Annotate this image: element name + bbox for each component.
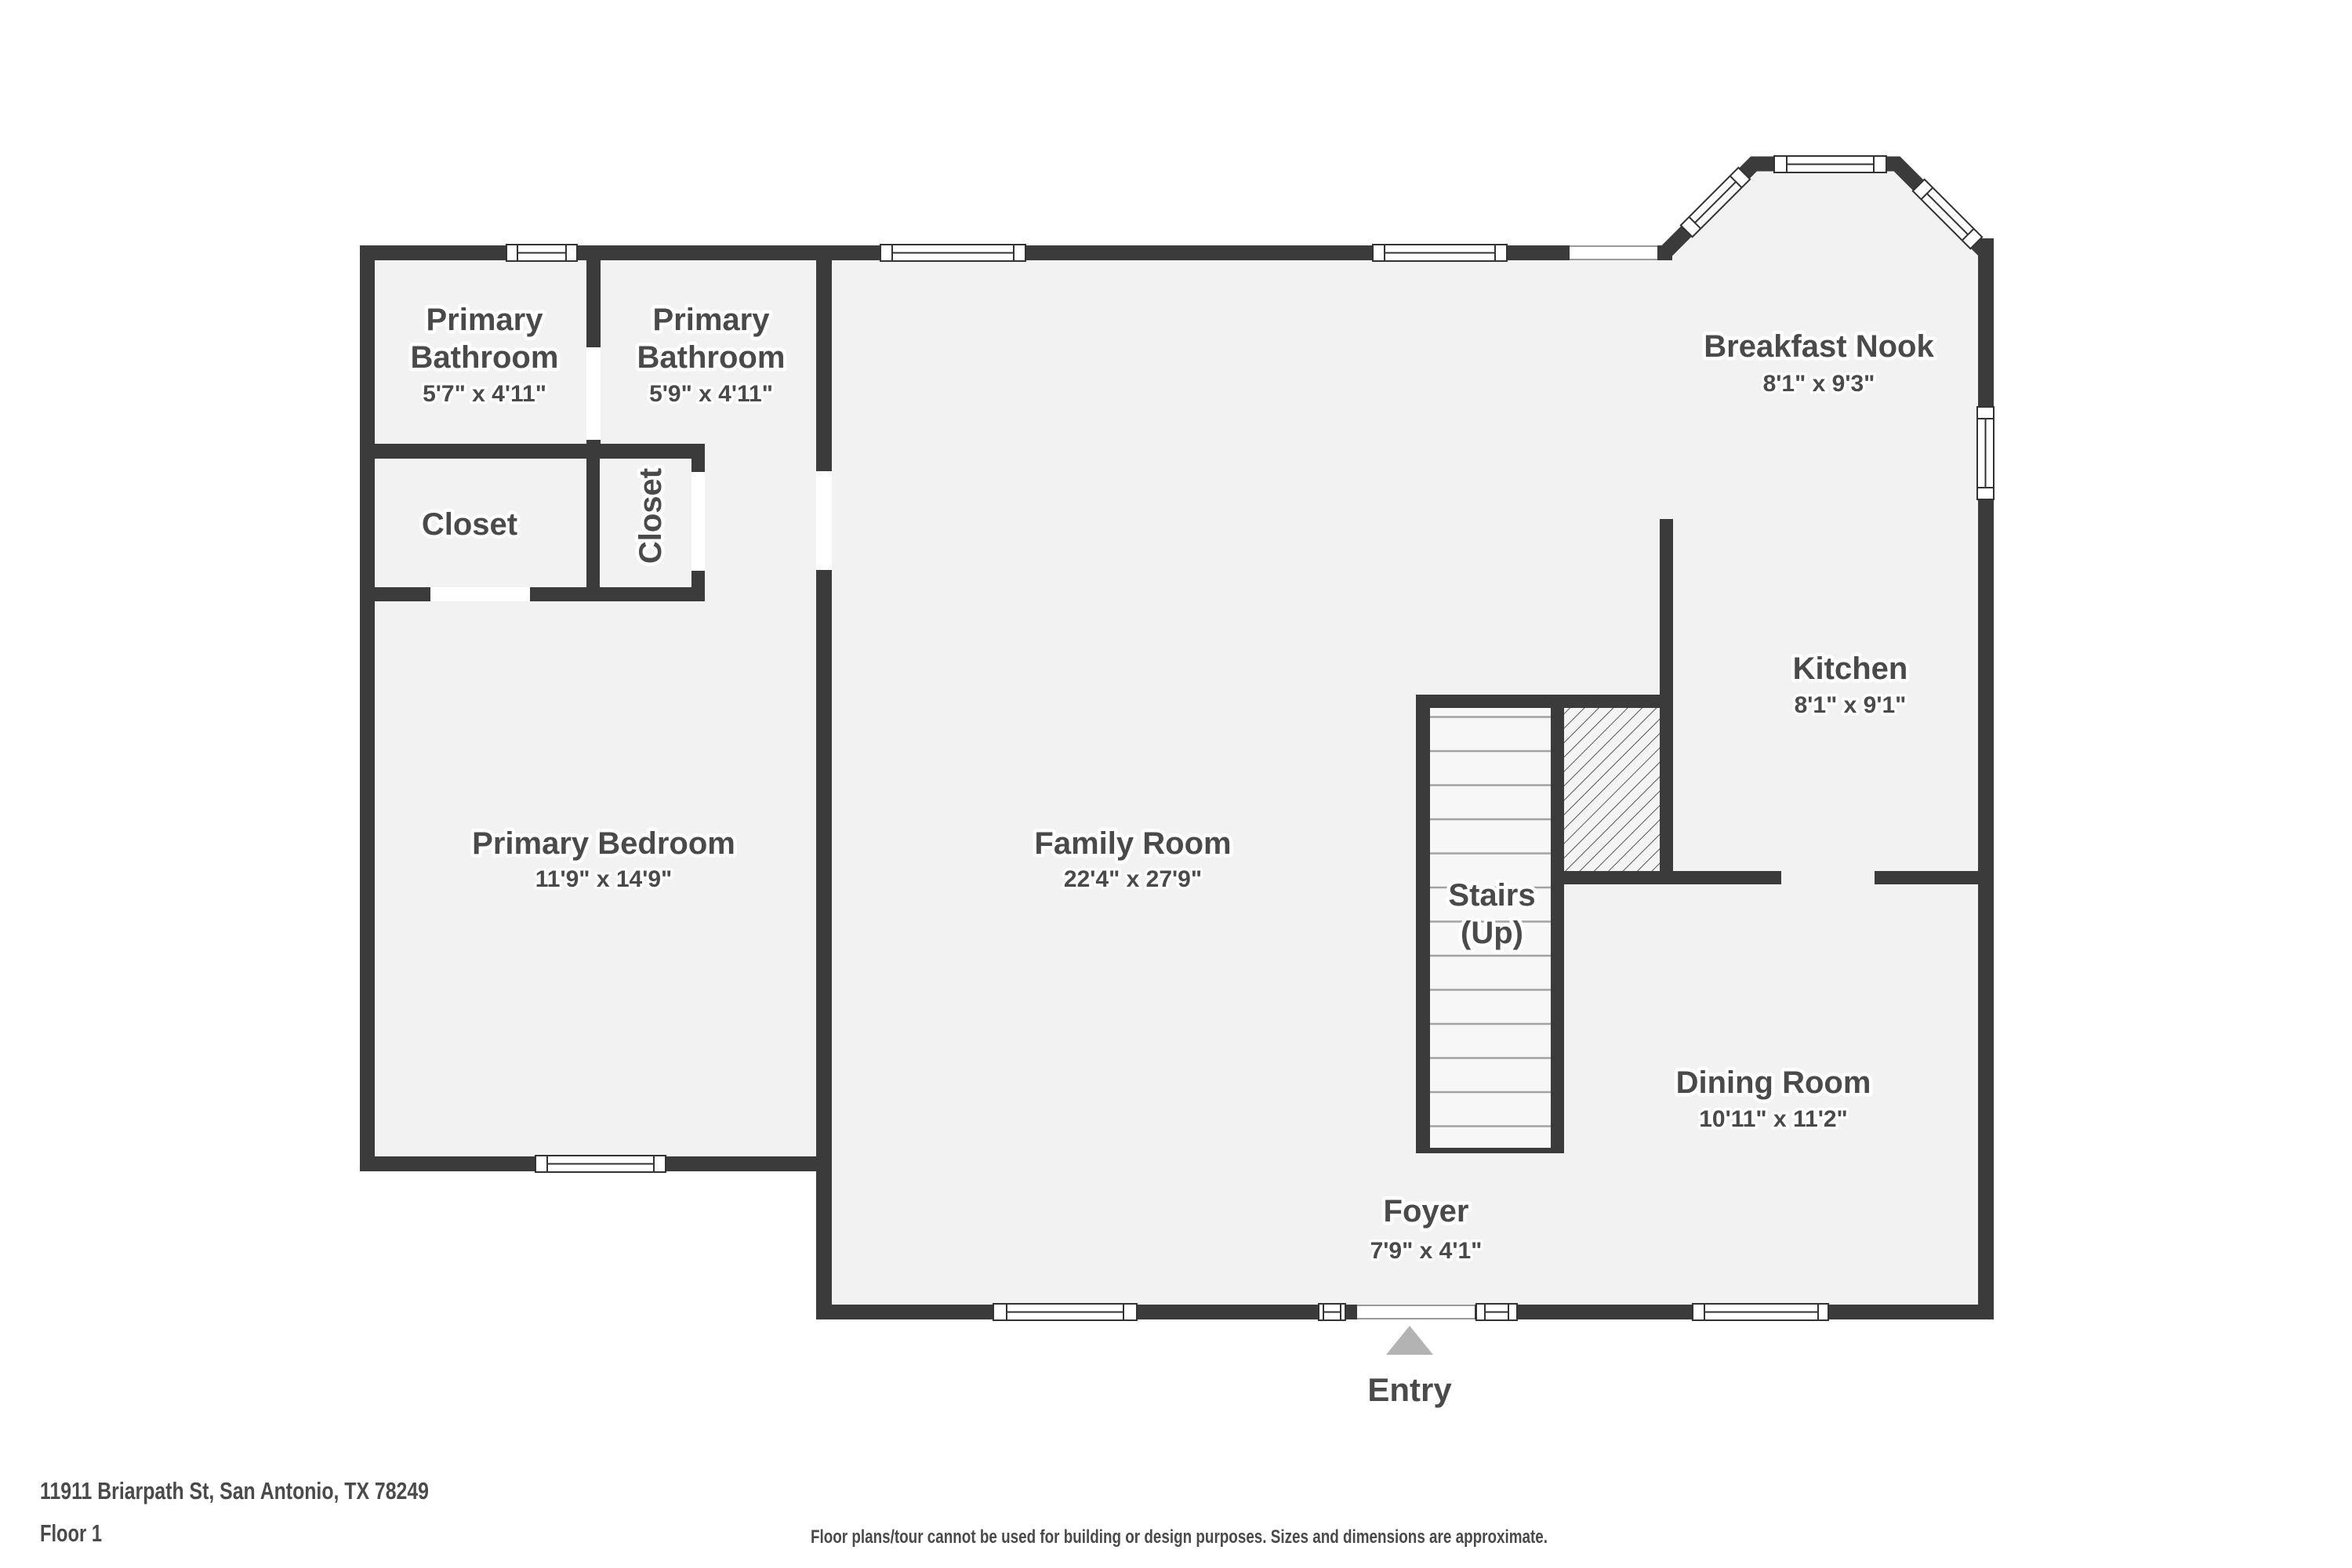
svg-text:Breakfast Nook: Breakfast Nook bbox=[1704, 329, 1934, 364]
svg-text:11'9" x 14'9": 11'9" x 14'9" bbox=[535, 866, 673, 892]
svg-text:8'1" x 9'1": 8'1" x 9'1" bbox=[1795, 692, 1907, 718]
svg-text:5'9" x 4'11": 5'9" x 4'11" bbox=[649, 381, 773, 407]
svg-text:Family Room: Family Room bbox=[1034, 826, 1231, 861]
svg-text:Primary: Primary bbox=[653, 303, 771, 337]
svg-text:8'1" x 9'3": 8'1" x 9'3" bbox=[1763, 371, 1875, 397]
svg-text:22'4" x 27'9": 22'4" x 27'9" bbox=[1064, 866, 1202, 892]
svg-text:Entry: Entry bbox=[1367, 1371, 1452, 1408]
svg-text:Bathroom: Bathroom bbox=[637, 340, 786, 375]
svg-text:Dining Room: Dining Room bbox=[1676, 1065, 1871, 1100]
svg-text:10'11" x 11'2": 10'11" x 11'2" bbox=[1699, 1106, 1848, 1132]
svg-text:Bathroom: Bathroom bbox=[411, 340, 559, 375]
svg-text:Floor 1: Floor 1 bbox=[40, 1519, 102, 1547]
svg-text:5'7" x 4'11": 5'7" x 4'11" bbox=[423, 381, 546, 407]
svg-text:(Up): (Up) bbox=[1461, 916, 1523, 950]
svg-text:Primary: Primary bbox=[426, 303, 544, 337]
svg-text:7'9" x 4'1": 7'9" x 4'1" bbox=[1370, 1238, 1483, 1264]
svg-text:Foyer: Foyer bbox=[1384, 1194, 1469, 1229]
svg-text:Closet: Closet bbox=[422, 507, 517, 542]
svg-text:11911 Briarpath St, San Antoni: 11911 Briarpath St, San Antonio, TX 7824… bbox=[40, 1477, 429, 1504]
svg-text:Primary Bedroom: Primary Bedroom bbox=[472, 826, 735, 861]
svg-text:Stairs: Stairs bbox=[1448, 878, 1535, 913]
svg-text:Closet: Closet bbox=[633, 468, 668, 564]
svg-text:Floor plans/tour cannot be use: Floor plans/tour cannot be used for buil… bbox=[811, 1526, 1548, 1548]
svg-text:Kitchen: Kitchen bbox=[1793, 652, 1908, 686]
